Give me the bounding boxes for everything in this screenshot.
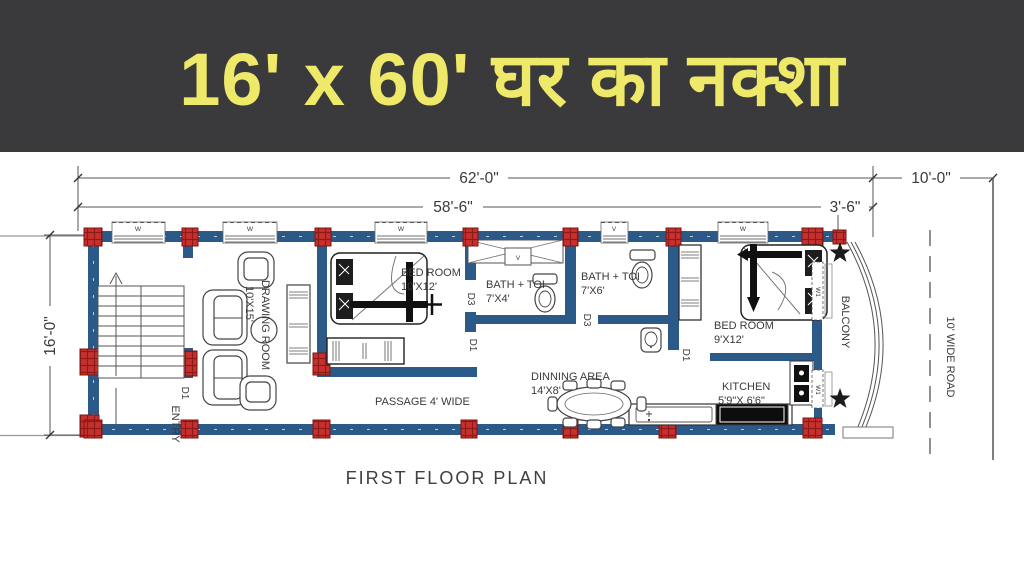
floor-plan-svg: V W W W — [0, 152, 1024, 576]
room-label-bath2: BATH + TOI — [581, 271, 640, 283]
shaft: V — [468, 240, 563, 265]
wardrobe-icon — [679, 245, 701, 320]
dim-inner: 58'-6" — [433, 199, 472, 216]
balcony-step — [843, 427, 893, 438]
screenshot-root: 16' x 60' घर का नक्शा — [0, 0, 1024, 576]
room-label-bed2: BED ROOM — [714, 320, 774, 332]
dim-overall: 62'-0" — [459, 170, 498, 187]
plant-star-icon — [830, 242, 851, 262]
kitchen-fixtures — [629, 361, 813, 425]
title-banner: 16' x 60' घर का नक्शा — [0, 0, 1024, 152]
room-size-bath2: 7'X6' — [581, 285, 605, 297]
room-label-entry: ENTRY — [169, 405, 181, 443]
road — [930, 178, 993, 460]
floor-plan: V W W W — [0, 152, 1024, 576]
window-w1-stairs: W — [112, 222, 165, 243]
vent-window-bath2: V — [601, 222, 628, 243]
drawing-room-furniture — [203, 252, 310, 410]
window-label: W — [135, 226, 142, 233]
room-label-bed1: BED ROOM — [401, 267, 461, 279]
vent-label: V — [612, 226, 617, 233]
bedroom2-furniture — [679, 244, 827, 320]
door-label-entry-d1: D1 — [179, 387, 190, 400]
door-label-d1: D1 — [680, 349, 691, 362]
room-label-bath1: BATH + TOI — [486, 279, 545, 291]
window-label-w1: W1 — [814, 287, 821, 297]
window-label: W — [740, 226, 747, 233]
room-label-dining: DINNING AREA — [531, 371, 611, 383]
room-label-passage: PASSAGE 4' WIDE — [375, 396, 470, 408]
plant-star-icon — [830, 388, 851, 408]
window-label: W — [398, 226, 405, 233]
room-size-bed2: 9'X12' — [714, 334, 744, 346]
road-label: 10' WIDE ROAD — [944, 317, 956, 398]
vent-label: V — [516, 255, 521, 262]
room-size-dining: 14'X8' — [531, 385, 561, 397]
door-label-d1: D1 — [467, 339, 478, 352]
toilet-icon — [630, 250, 655, 260]
plan-caption: FIRST FLOOR PLAN — [346, 468, 549, 488]
window-w4-bed2: W — [718, 222, 768, 243]
room-size-bed1: 10'X12' — [401, 281, 437, 293]
dim-road: 10'-0" — [911, 170, 950, 187]
room-label-kitchen: KITCHEN — [722, 381, 770, 393]
window-label: W — [247, 226, 254, 233]
window-w3-bed1: W — [375, 222, 427, 243]
room-size-bath1: 7'X4' — [486, 293, 510, 305]
room-label-balcony: BALCONY — [839, 296, 851, 349]
room-label-drawing: DRAWING ROOM — [259, 280, 271, 370]
room-size-kitchen: 5'9"X 6'6" — [718, 395, 765, 407]
dining-table-icon — [557, 387, 631, 421]
door-label-d3: D3 — [581, 314, 592, 327]
bath2-fixtures — [630, 250, 661, 352]
banner-title: 16' x 60' घर का नक्शा — [179, 26, 844, 127]
door-label-d3: D3 — [465, 293, 476, 306]
dim-side: 16'-0" — [42, 316, 59, 355]
window-label-w1: W1 — [814, 385, 821, 395]
dim-balcony: 3'-6" — [830, 199, 861, 216]
room-size-drawing: 10'X15' — [243, 286, 255, 322]
wardrobe-icon — [327, 338, 404, 364]
window-w2-drawing: W — [223, 222, 277, 243]
pillow-icon — [336, 259, 353, 285]
